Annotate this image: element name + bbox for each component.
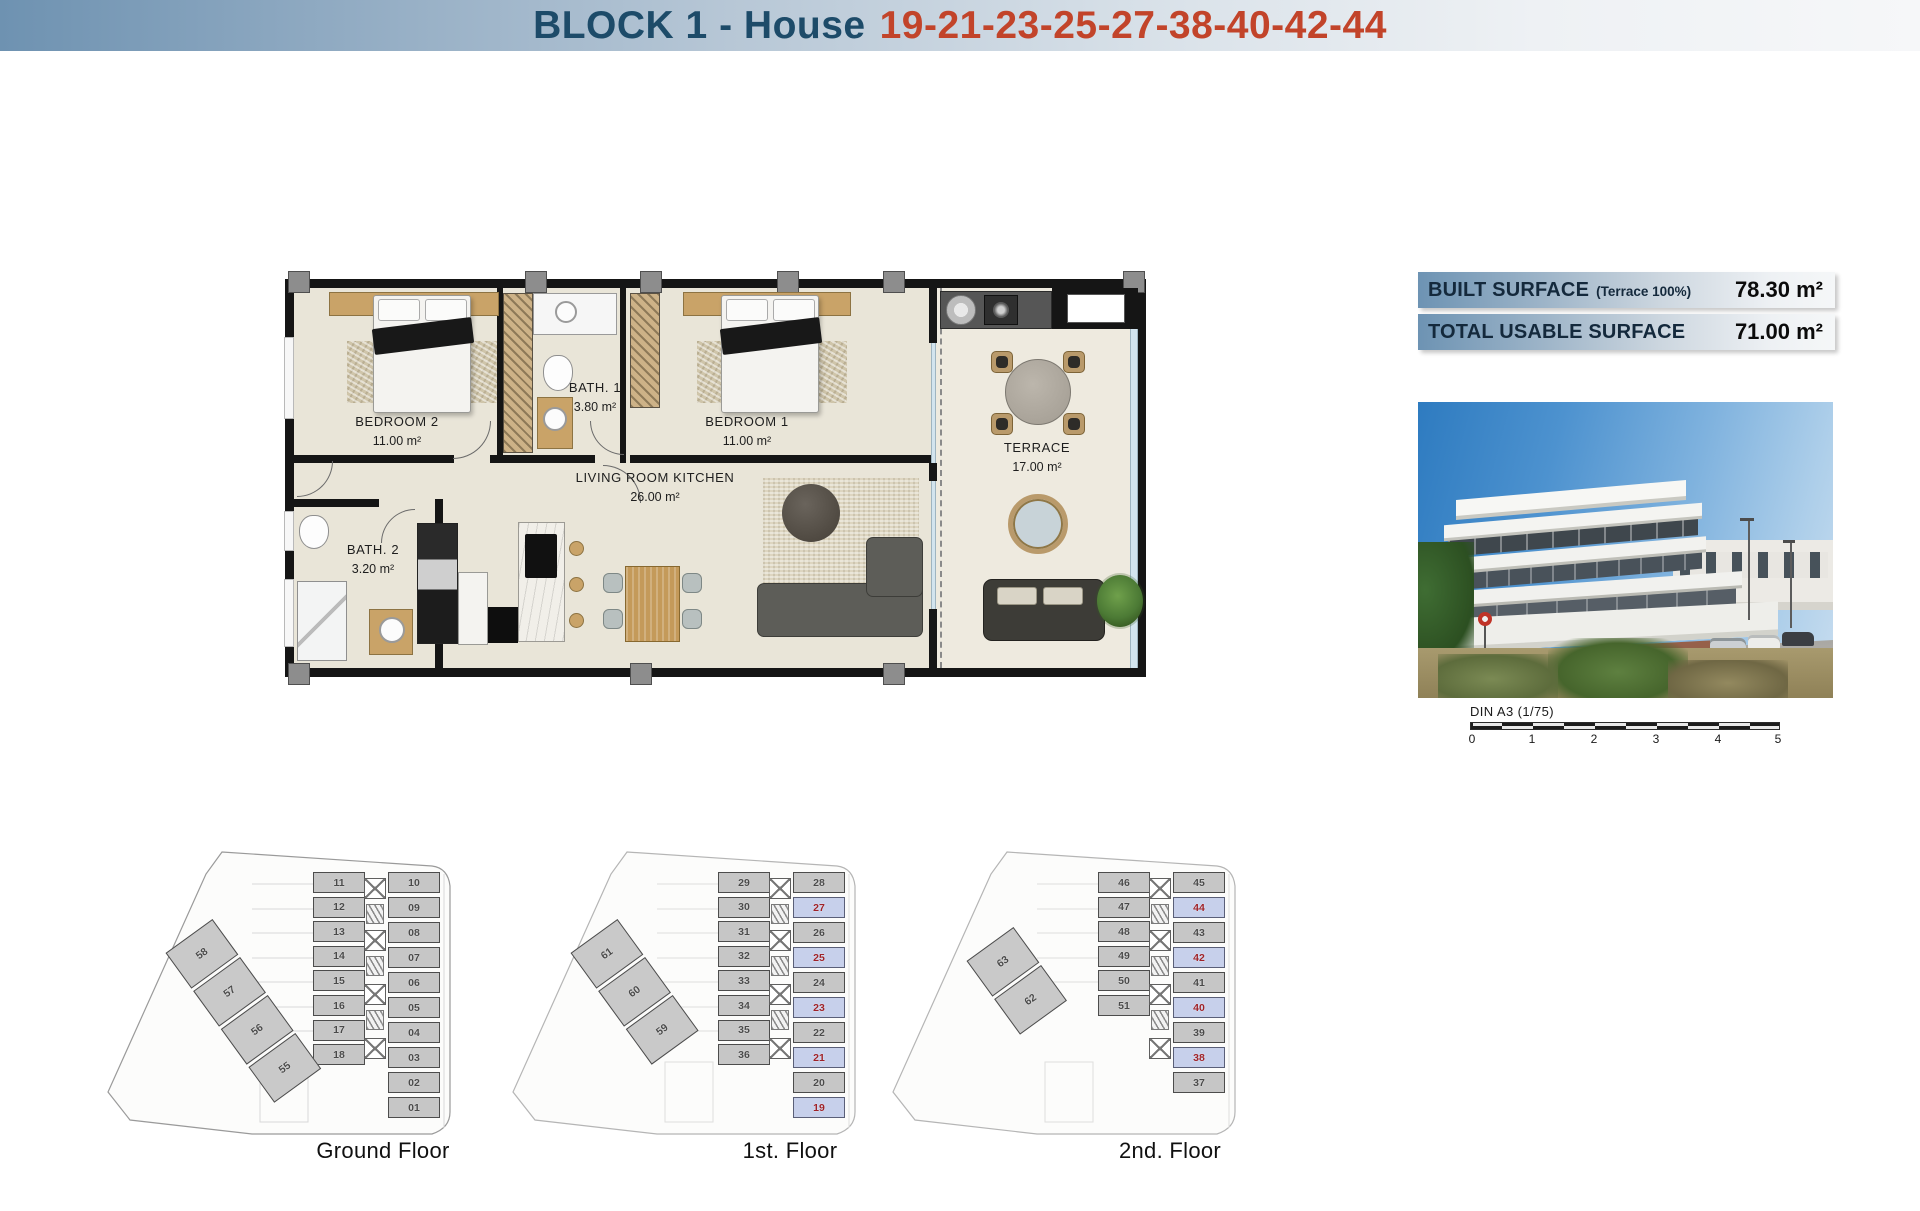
unit-box: 16: [313, 995, 365, 1016]
scale-ruler: [1470, 722, 1780, 730]
wall-bottom: [285, 668, 1146, 677]
unit-box: 03: [388, 1047, 440, 1068]
wall-interior: [929, 463, 937, 481]
unit-box: 05: [388, 997, 440, 1018]
pillow: [726, 299, 768, 321]
core-box: [366, 956, 384, 976]
core-box: [1149, 930, 1171, 951]
dining-chair: [603, 573, 623, 593]
cushion: [1043, 587, 1083, 605]
dry-brush: [1668, 660, 1788, 698]
unit-box: 41: [1173, 972, 1225, 993]
room-label-bedroom2: BEDROOM 211.00 m²: [317, 413, 477, 450]
washing-machine: [984, 295, 1018, 325]
unit-box: 48: [1098, 921, 1150, 942]
core-box: [366, 1010, 384, 1030]
glass-door: [931, 481, 936, 609]
plant: [1097, 575, 1143, 627]
unit-box: 01: [388, 1097, 440, 1118]
bush: [1438, 654, 1558, 698]
pillar: [288, 271, 310, 293]
unit-box: 10: [388, 872, 440, 893]
core-box: [771, 1010, 789, 1030]
glass-door: [931, 343, 936, 463]
unit-box: 30: [718, 897, 770, 918]
miniplan-2nd-floor: 2nd. Floor 46474849505145444342414039383…: [885, 842, 1265, 1172]
core-box: [769, 1038, 791, 1059]
terrace-boundary-dashed: [940, 288, 942, 668]
terrace-chair: [1063, 413, 1085, 435]
brochure-page: BLOCK 1 - House 19-21-23-25-27-38-40-42-…: [0, 0, 1920, 1211]
unit-box: 23: [793, 997, 845, 1018]
room-label-bedroom1: BEDROOM 111.00 m²: [667, 413, 827, 450]
usable-surface-box: TOTAL USABLE SURFACE 71.00 m²: [1418, 314, 1835, 350]
wall-top: [285, 279, 1146, 288]
unit-box: 50: [1098, 970, 1150, 991]
scale-label: DIN A3 (1/75): [1470, 704, 1780, 719]
unit-box: 45: [1173, 872, 1225, 893]
core-box: [1151, 904, 1169, 924]
terrace-chair: [991, 413, 1013, 435]
unit-box: 38: [1173, 1047, 1225, 1068]
unit-box: 09: [388, 897, 440, 918]
unit-box: 21: [793, 1047, 845, 1068]
heat-pump: [946, 295, 976, 325]
unit-box: 34: [718, 995, 770, 1016]
scale-ticks: 0 1 2 3 4 5: [1470, 732, 1780, 748]
terrace-rug: [1008, 494, 1068, 554]
unit-box: 37: [1173, 1072, 1225, 1093]
pillar: [525, 271, 547, 293]
pillar: [288, 663, 310, 685]
core-box: [366, 904, 384, 924]
tv: [488, 607, 518, 643]
room-label-bath1: BATH. 13.80 m²: [535, 379, 655, 416]
core-box: [1149, 878, 1171, 899]
tv-cabinet: [458, 572, 488, 645]
bush: [1548, 638, 1688, 698]
unit-box: 36: [718, 1044, 770, 1065]
stool: [569, 541, 584, 556]
core-box: [1149, 984, 1171, 1005]
miniplan-1st-floor: 1st. Floor 29303132333435362827262524232…: [505, 842, 885, 1172]
wall-interior: [490, 455, 595, 463]
pillow: [378, 299, 420, 321]
unit-box: 51: [1098, 995, 1150, 1016]
cushion: [997, 587, 1037, 605]
unit-box: 28: [793, 872, 845, 893]
wall-interior: [294, 499, 379, 507]
unit-box: 44: [1173, 897, 1225, 918]
unit-box: 40: [1173, 997, 1225, 1018]
floor-label: Ground Floor: [278, 1138, 488, 1164]
unit-box: 19: [793, 1097, 845, 1118]
street-light: [1790, 542, 1792, 628]
cooktop: [525, 534, 557, 578]
core-box: [1151, 956, 1169, 976]
pillar: [883, 663, 905, 685]
core-box: [769, 930, 791, 951]
unit-box: 25: [793, 947, 845, 968]
terrace-chair: [991, 351, 1013, 373]
unit-box: 04: [388, 1022, 440, 1043]
unit-box: 08: [388, 922, 440, 943]
core-box: [1149, 1038, 1171, 1059]
unit-box: 42: [1173, 947, 1225, 968]
room-label-living: LIVING ROOM KITCHEN26.00 m²: [555, 469, 755, 506]
core-box: [364, 1038, 386, 1059]
scale-bar: DIN A3 (1/75) 0 1 2 3 4 5: [1470, 704, 1780, 748]
unit-box: 07: [388, 947, 440, 968]
stool: [569, 577, 584, 592]
unit-box: 11: [313, 872, 365, 893]
room-label-bath2: BATH. 23.20 m²: [313, 541, 433, 578]
unit-box: 33: [718, 970, 770, 991]
unit-box: 27: [793, 897, 845, 918]
built-surface-label: BUILT SURFACE: [1428, 279, 1589, 302]
core-box: [364, 930, 386, 951]
car: [1782, 632, 1814, 646]
unit-box: 14: [313, 946, 365, 967]
window: [284, 579, 294, 647]
unit-box: 06: [388, 972, 440, 993]
unit-box: 17: [313, 1020, 365, 1041]
unit-box: 47: [1098, 897, 1150, 918]
core-box: [1151, 1010, 1169, 1030]
unit-box: 35: [718, 1020, 770, 1041]
traffic-sign: [1478, 612, 1492, 626]
window: [284, 511, 294, 551]
wardrobe: [503, 293, 533, 453]
built-surface-note: (Terrace 100%): [1596, 284, 1691, 299]
street-light-head: [1740, 518, 1754, 521]
built-surface-box: BUILT SURFACE (Terrace 100%) 78.30 m²: [1418, 272, 1835, 308]
palm-foliage: [1418, 542, 1474, 662]
wall-right: [1138, 279, 1146, 677]
core-box: [771, 904, 789, 924]
core-box: [769, 878, 791, 899]
unit-box: 18: [313, 1044, 365, 1065]
wall-interior: [929, 288, 937, 343]
sofa-chaise: [866, 537, 923, 597]
floor-label: 1st. Floor: [705, 1138, 875, 1164]
miniplan-ground-floor: Ground Floor 111213141516171810090807060…: [100, 842, 480, 1172]
round-rug: [782, 484, 840, 542]
unit-box: 15: [313, 970, 365, 991]
dining-chair: [603, 609, 623, 629]
skylight: [1067, 294, 1125, 323]
wall-interior: [630, 455, 933, 463]
bath2-shower: [297, 581, 347, 661]
core-box: [771, 956, 789, 976]
pillar: [883, 271, 905, 293]
street-light: [1748, 520, 1750, 620]
building-photo: [1418, 402, 1833, 698]
pillar: [640, 271, 662, 293]
dining-chair: [682, 609, 702, 629]
unit-box: 22: [793, 1022, 845, 1043]
unit-box: 26: [793, 922, 845, 943]
unit-box: 49: [1098, 946, 1150, 967]
unit-box: 29: [718, 872, 770, 893]
window: [284, 337, 294, 419]
usable-surface-label: TOTAL USABLE SURFACE: [1428, 321, 1685, 344]
unit-box: 24: [793, 972, 845, 993]
pillar: [630, 663, 652, 685]
terrace-chair: [1063, 351, 1085, 373]
street-light-head: [1783, 540, 1795, 543]
built-surface-value: 78.30 m²: [1735, 277, 1823, 303]
room-label-terrace: TERRACE17.00 m²: [957, 439, 1117, 476]
unit-box: 20: [793, 1072, 845, 1093]
pillar: [777, 271, 799, 293]
sign-pole: [1484, 624, 1486, 650]
header-bar: BLOCK 1 - House 19-21-23-25-27-38-40-42-…: [0, 0, 1920, 51]
usable-surface-value: 71.00 m²: [1735, 319, 1823, 345]
unit-box: 46: [1098, 872, 1150, 893]
car: [1748, 635, 1780, 649]
unit-box: 32: [718, 946, 770, 967]
terrace-table: [1005, 359, 1071, 425]
floor-label: 2nd. Floor: [1085, 1138, 1255, 1164]
bath1-sink: [555, 301, 577, 323]
main-floorplan: BEDROOM 211.00 m² BATH. 13.80 m² BEDROOM…: [285, 279, 1146, 677]
dining-chair: [682, 573, 702, 593]
bath2-basin: [379, 617, 405, 643]
stool: [569, 613, 584, 628]
unit-box: 12: [313, 897, 365, 918]
core-box: [364, 984, 386, 1005]
unit-box: 43: [1173, 922, 1225, 943]
unit-box: 02: [388, 1072, 440, 1093]
wall-interior: [929, 609, 937, 668]
unit-box: 39: [1173, 1022, 1225, 1043]
core-box: [364, 878, 386, 899]
unit-box: 13: [313, 921, 365, 942]
core-box: [769, 984, 791, 1005]
dining-table: [625, 566, 680, 642]
unit-box: 31: [718, 921, 770, 942]
page-title-house-numbers: 19-21-23-25-27-38-40-42-44: [880, 4, 1387, 48]
page-title: BLOCK 1 - House: [533, 4, 866, 48]
